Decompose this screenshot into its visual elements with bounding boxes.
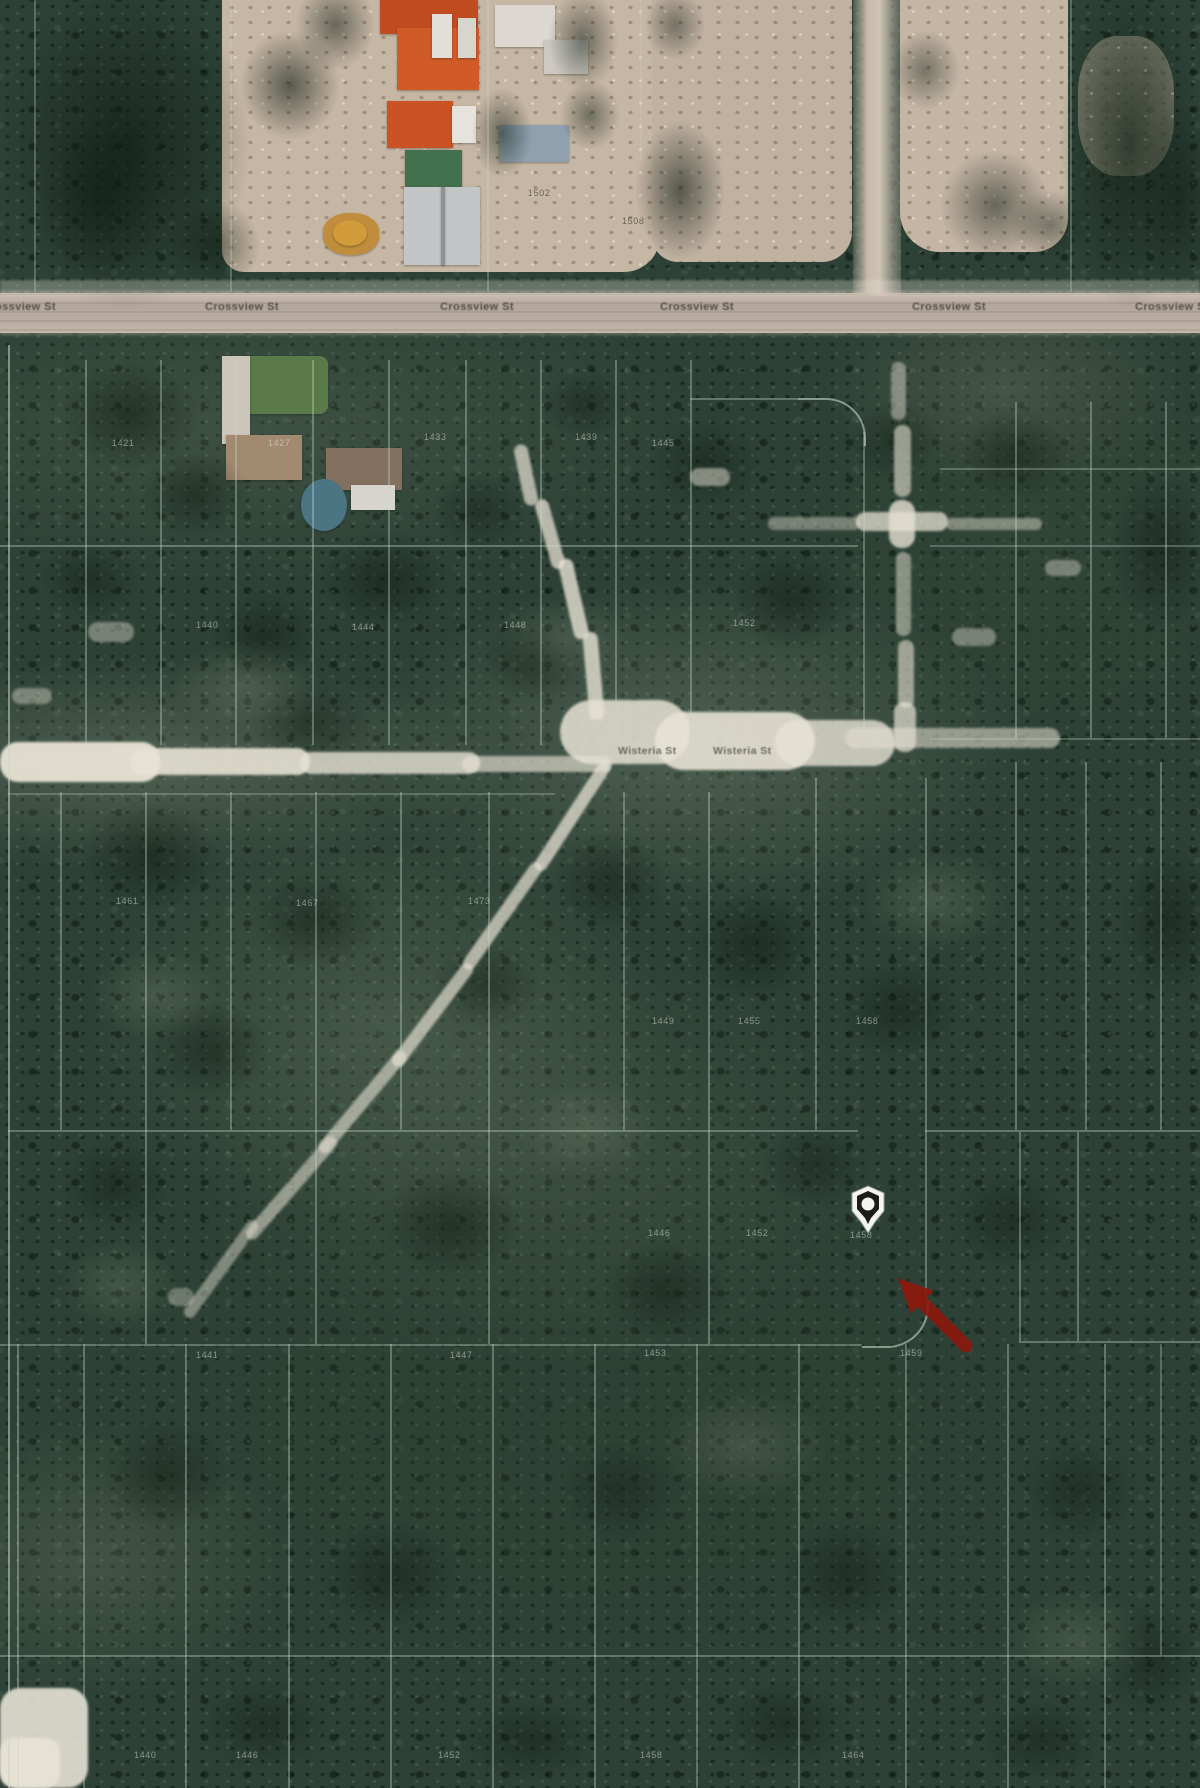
- location-pin-icon: [849, 1184, 887, 1234]
- satellite-parcel-map: 1502150815141421142714331439144514401444…: [0, 0, 1200, 1788]
- highlight-arrow-icon: [0, 0, 1200, 1788]
